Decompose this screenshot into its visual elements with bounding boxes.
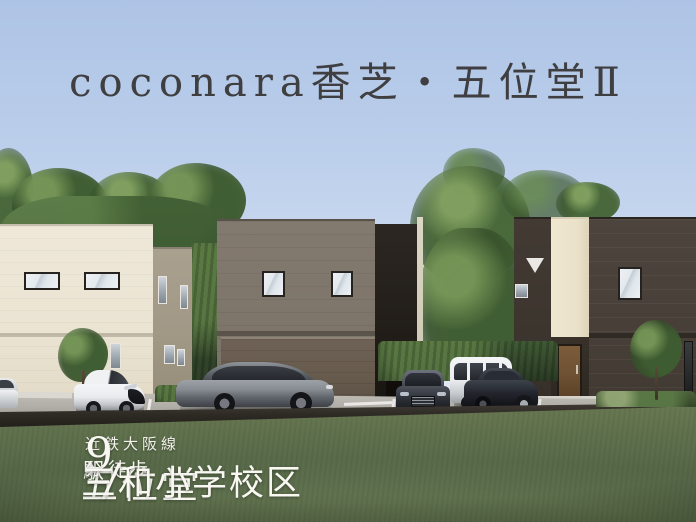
ad-image: coconara香芝・五位堂Ⅱ 近鉄大阪線 五位堂 駅 徒歩 9 分 / 三和小… bbox=[0, 0, 696, 522]
house-left-wing-window bbox=[180, 285, 188, 309]
house-mid-eave-line bbox=[217, 331, 375, 336]
house-mid-window bbox=[262, 271, 285, 297]
house-left-window-narrow bbox=[110, 343, 121, 369]
house-mid-window bbox=[331, 271, 353, 297]
car-white-hatchback bbox=[74, 370, 146, 416]
house-right-cream-stripe bbox=[551, 217, 589, 337]
shrub-strip bbox=[596, 391, 696, 407]
house-right-window bbox=[618, 267, 642, 300]
house-left-window bbox=[24, 272, 60, 290]
garden-tree-trunk bbox=[655, 366, 658, 400]
house-right-window-narrow bbox=[684, 341, 693, 398]
house-left-window bbox=[84, 272, 120, 290]
house-right-side-window bbox=[515, 284, 528, 298]
house-right-door-handle bbox=[576, 365, 578, 374]
school-district: 三和小学校区 bbox=[81, 455, 303, 506]
house-left-wing-window bbox=[158, 276, 167, 304]
car-gray-suv bbox=[176, 362, 336, 416]
car-white-partial bbox=[0, 378, 18, 410]
headline-title: coconara香芝・五位堂Ⅱ bbox=[0, 61, 696, 105]
house-left-wing-window bbox=[164, 345, 175, 364]
house-right-front-door bbox=[557, 344, 582, 398]
house-right-canopy bbox=[526, 258, 544, 273]
